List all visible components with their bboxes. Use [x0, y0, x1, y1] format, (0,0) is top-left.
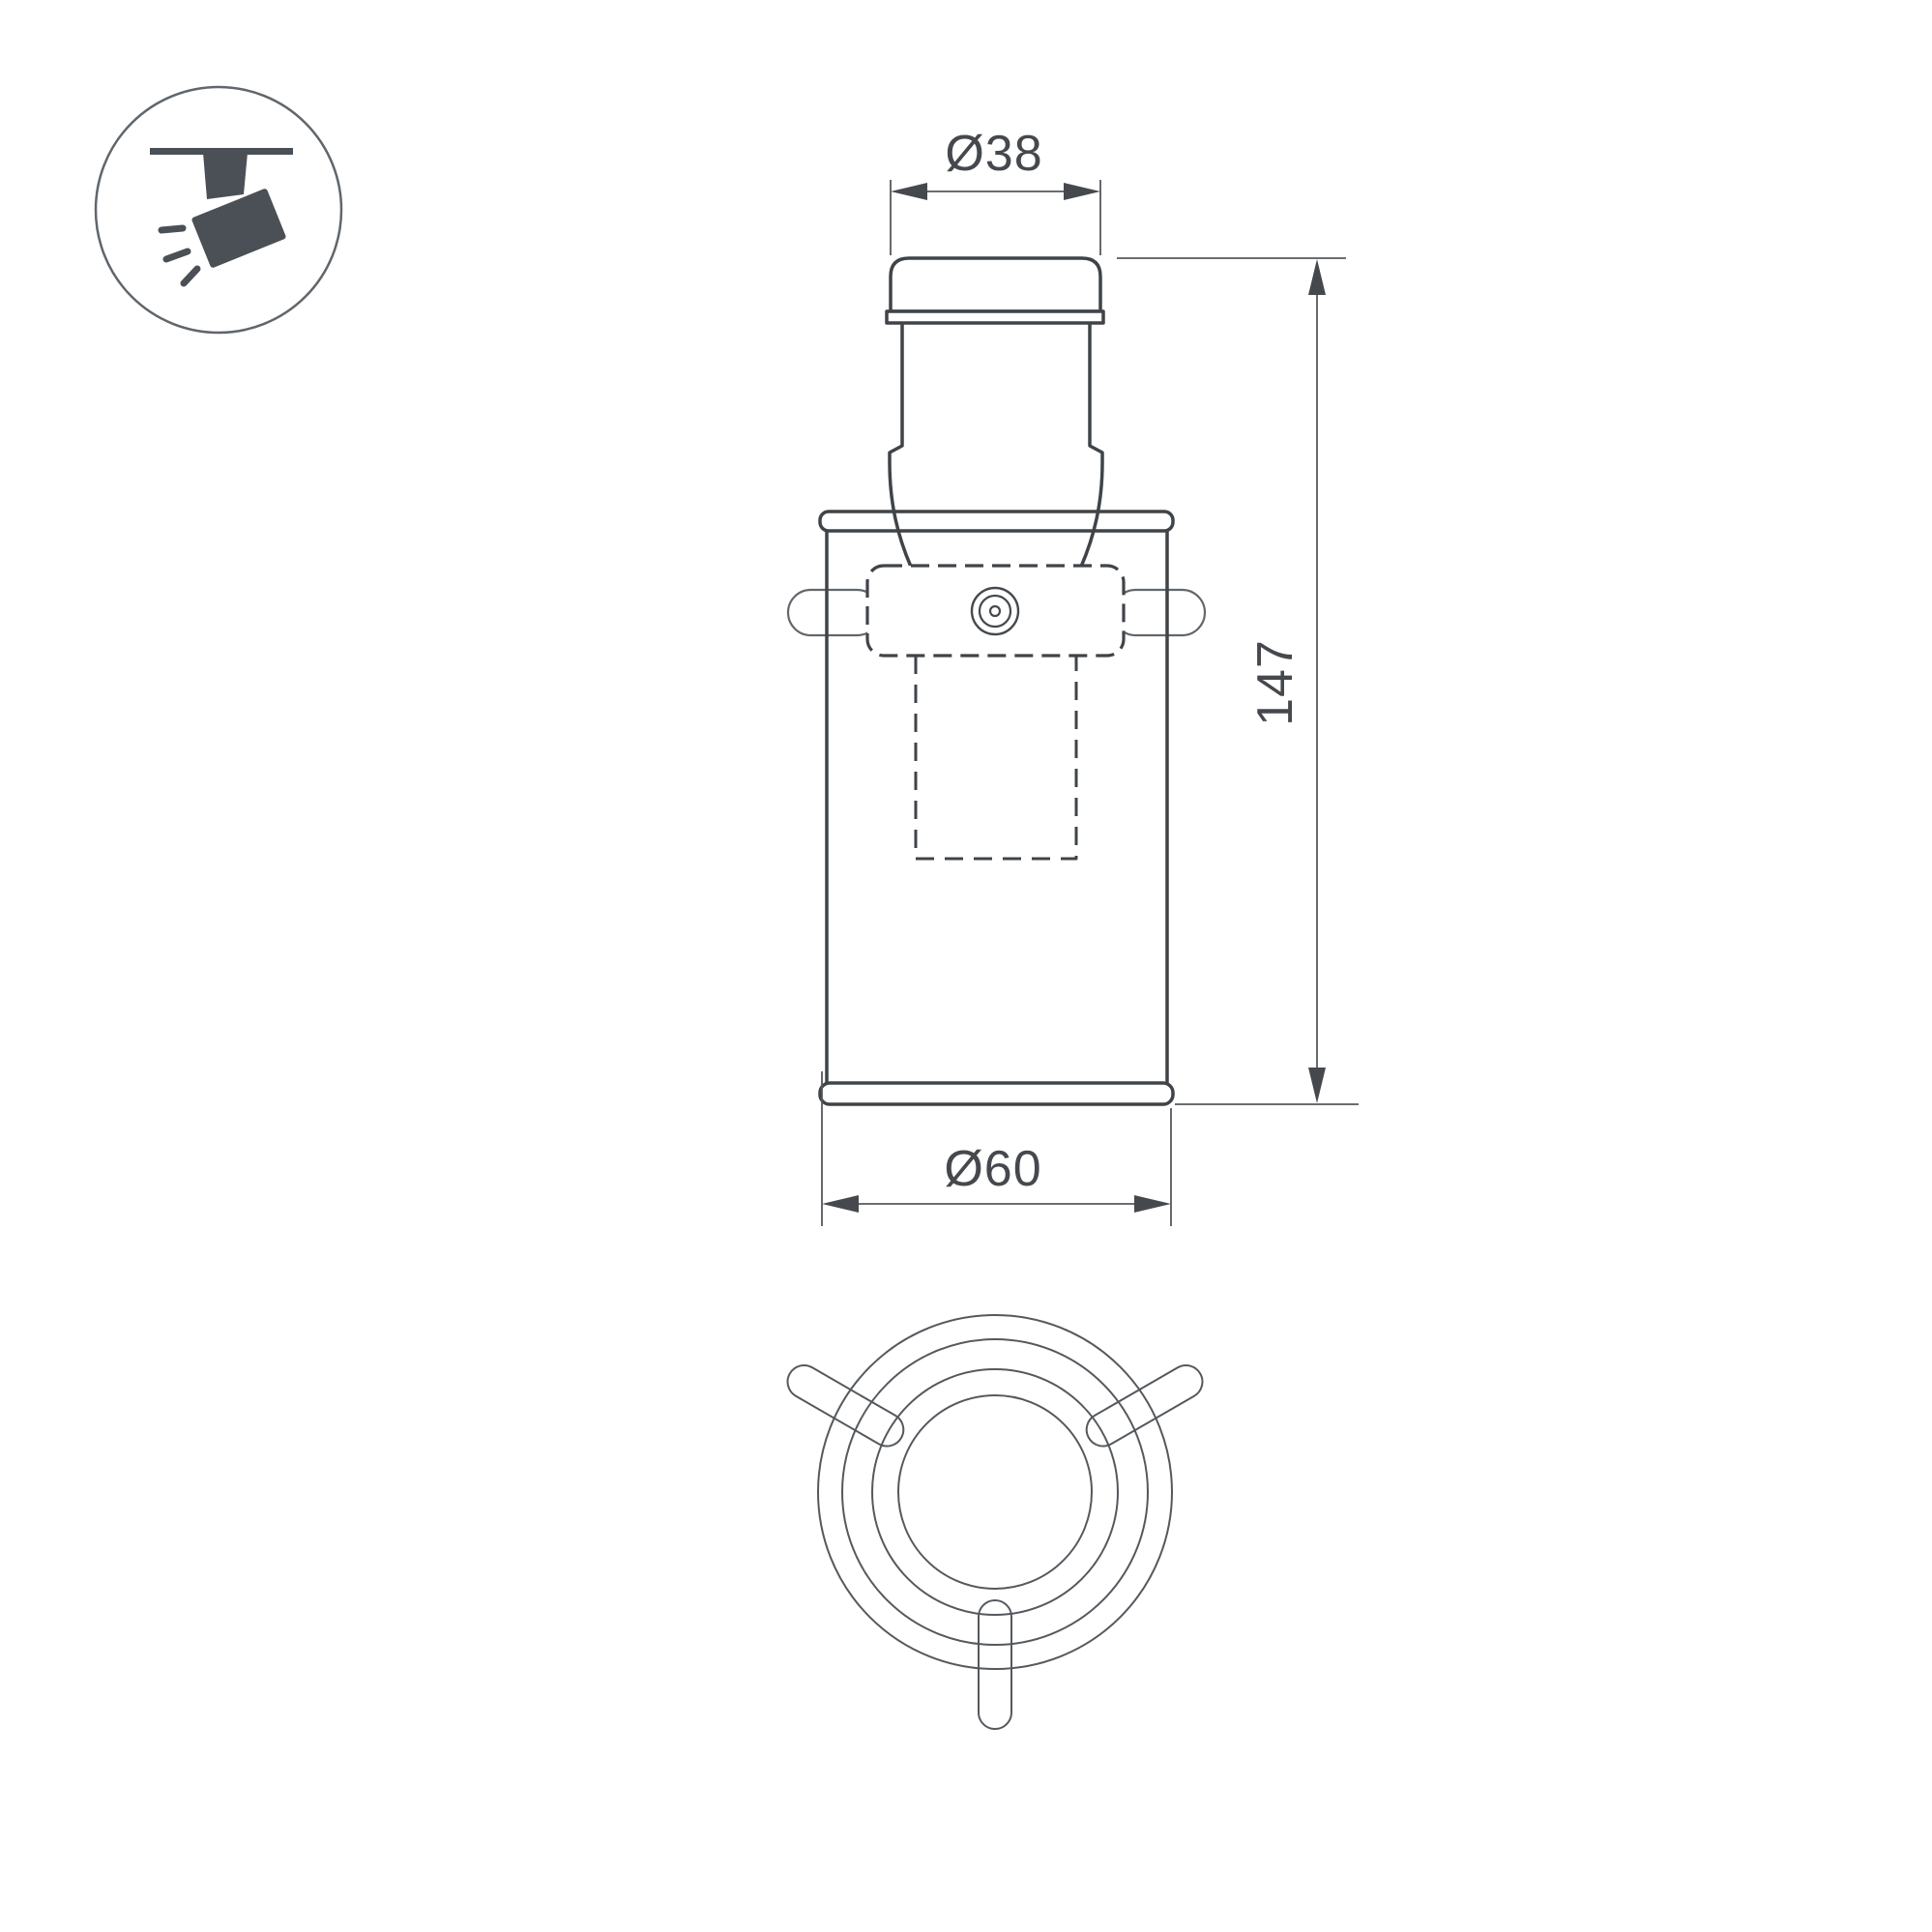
drawing-page: Ø38 147 Ø60	[0, 0, 1932, 1932]
dim-label-top-diameter: Ø38	[945, 126, 1042, 182]
dim-label-height: 147	[1247, 639, 1303, 726]
diagram-canvas: Ø38 147 Ø60	[0, 0, 1932, 1932]
dim-label-bottom-diameter: Ø60	[944, 1141, 1041, 1197]
track-light-icon	[96, 87, 341, 333]
canopy-flange	[820, 512, 1173, 531]
icon-stem	[203, 153, 248, 199]
hidden-mount-block	[867, 566, 1124, 656]
bottom-rim	[820, 1083, 1173, 1104]
adapter-cap	[891, 258, 1100, 311]
adapter-collar	[887, 311, 1103, 323]
